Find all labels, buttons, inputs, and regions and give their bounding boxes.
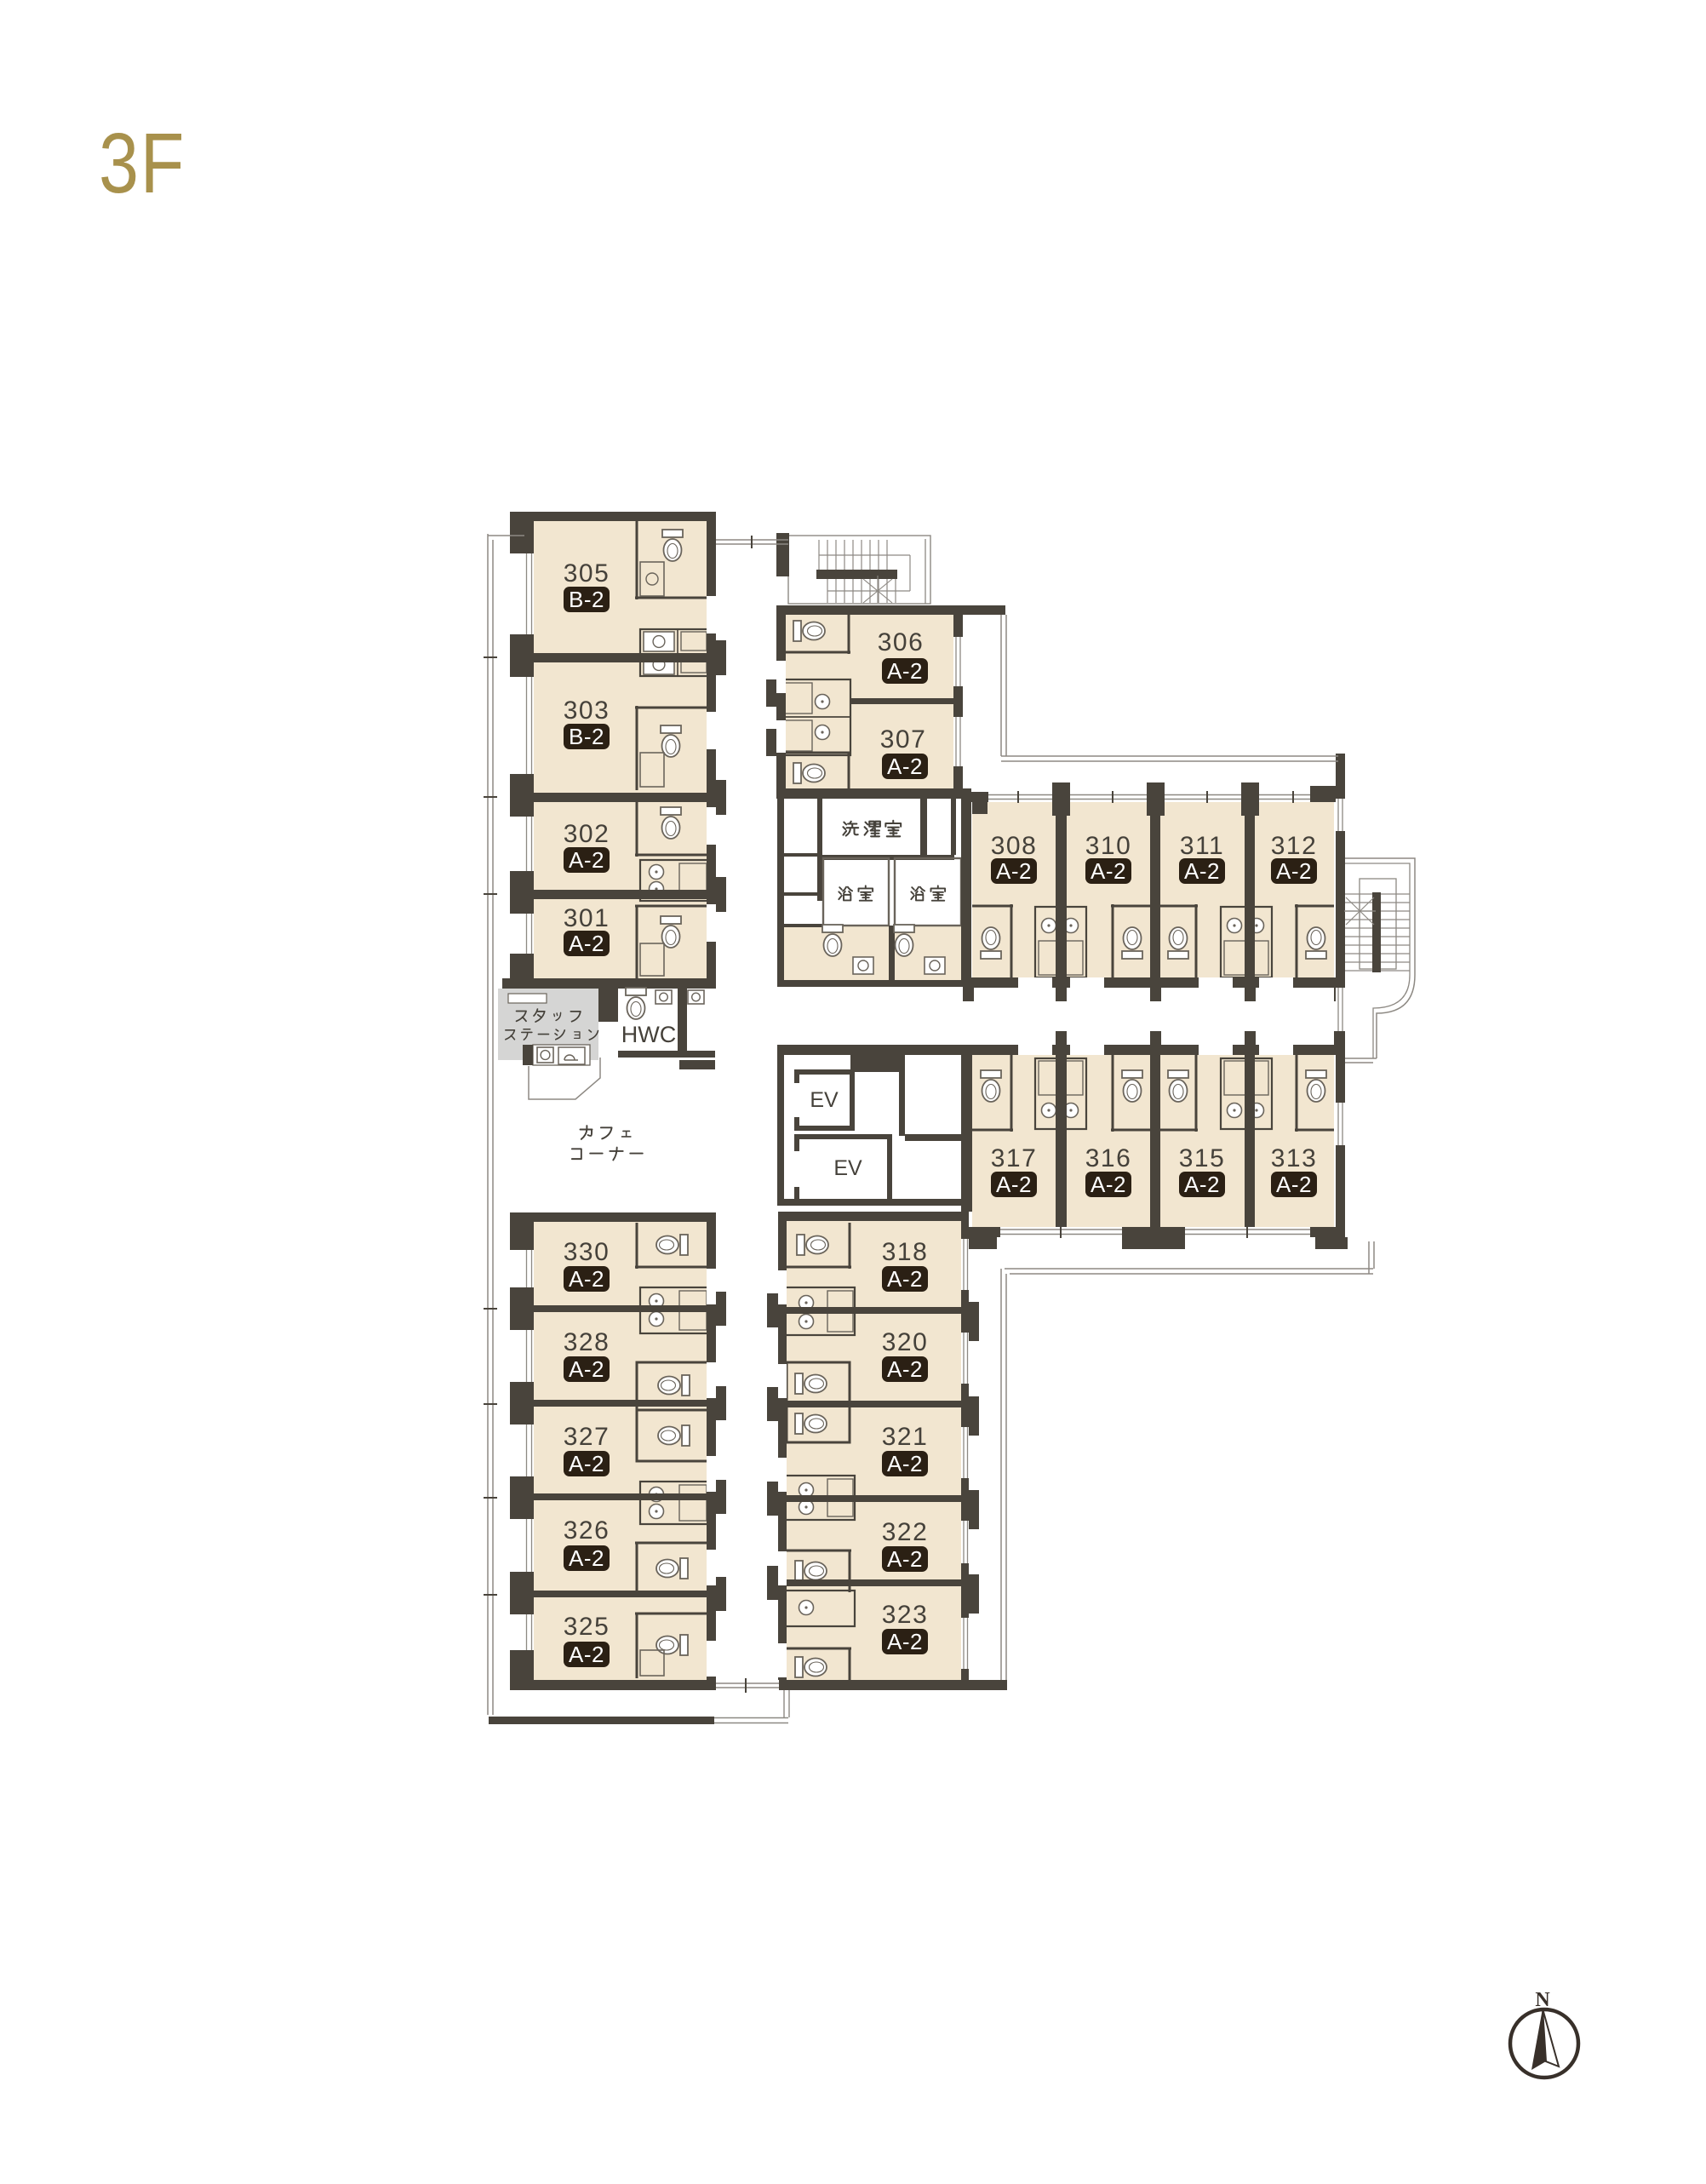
svg-text:313: 313 xyxy=(1271,1144,1318,1172)
svg-text:308: 308 xyxy=(991,832,1038,860)
svg-text:A-2: A-2 xyxy=(1276,858,1312,884)
svg-text:A-2: A-2 xyxy=(887,1266,923,1292)
svg-text:307: 307 xyxy=(880,725,927,754)
svg-text:306: 306 xyxy=(878,628,925,656)
svg-text:303: 303 xyxy=(564,696,610,725)
svg-text:318: 318 xyxy=(882,1238,929,1266)
svg-text:A-2: A-2 xyxy=(1184,858,1220,884)
svg-text:A-2: A-2 xyxy=(887,658,923,684)
svg-text:323: 323 xyxy=(882,1601,929,1629)
svg-text:A-2: A-2 xyxy=(569,931,604,956)
svg-text:EV: EV xyxy=(833,1156,862,1180)
svg-text:301: 301 xyxy=(564,904,610,932)
svg-text:A-2: A-2 xyxy=(1184,1172,1220,1197)
svg-text:311: 311 xyxy=(1180,832,1224,860)
svg-text:A-2: A-2 xyxy=(1091,1172,1126,1197)
svg-text:310: 310 xyxy=(1085,832,1132,860)
svg-text:A-2: A-2 xyxy=(887,1629,923,1654)
svg-text:320: 320 xyxy=(882,1328,929,1356)
svg-text:325: 325 xyxy=(564,1613,610,1641)
svg-text:322: 322 xyxy=(882,1518,929,1546)
svg-text:A-2: A-2 xyxy=(569,1266,604,1292)
svg-text:A-2: A-2 xyxy=(569,1642,604,1667)
svg-text:EV: EV xyxy=(810,1088,839,1112)
svg-text:3F: 3F xyxy=(99,116,186,211)
svg-text:A-2: A-2 xyxy=(996,858,1032,884)
svg-text:316: 316 xyxy=(1085,1144,1132,1172)
svg-text:A-2: A-2 xyxy=(887,754,923,779)
svg-text:A-2: A-2 xyxy=(1276,1172,1312,1197)
svg-text:A-2: A-2 xyxy=(569,1545,604,1571)
svg-text:A-2: A-2 xyxy=(887,1451,923,1476)
svg-text:A-2: A-2 xyxy=(569,847,604,873)
svg-text:A-2: A-2 xyxy=(569,1451,604,1476)
svg-text:330: 330 xyxy=(564,1238,610,1266)
svg-text:328: 328 xyxy=(564,1328,610,1356)
svg-text:B-2: B-2 xyxy=(569,587,604,612)
svg-text:HWC: HWC xyxy=(621,1022,676,1047)
svg-text:A-2: A-2 xyxy=(1091,858,1126,884)
svg-text:312: 312 xyxy=(1271,832,1318,860)
svg-text:321: 321 xyxy=(882,1423,929,1451)
svg-text:N: N xyxy=(1535,1989,1550,2011)
svg-text:317: 317 xyxy=(991,1144,1038,1172)
svg-text:315: 315 xyxy=(1179,1144,1226,1172)
svg-text:327: 327 xyxy=(564,1423,610,1451)
svg-text:A-2: A-2 xyxy=(887,1546,923,1572)
svg-text:A-2: A-2 xyxy=(996,1172,1032,1197)
svg-text:305: 305 xyxy=(564,559,610,588)
svg-text:A-2: A-2 xyxy=(569,1356,604,1382)
svg-text:326: 326 xyxy=(564,1516,610,1545)
svg-text:B-2: B-2 xyxy=(569,724,604,749)
svg-text:A-2: A-2 xyxy=(887,1356,923,1382)
svg-text:302: 302 xyxy=(564,820,610,848)
